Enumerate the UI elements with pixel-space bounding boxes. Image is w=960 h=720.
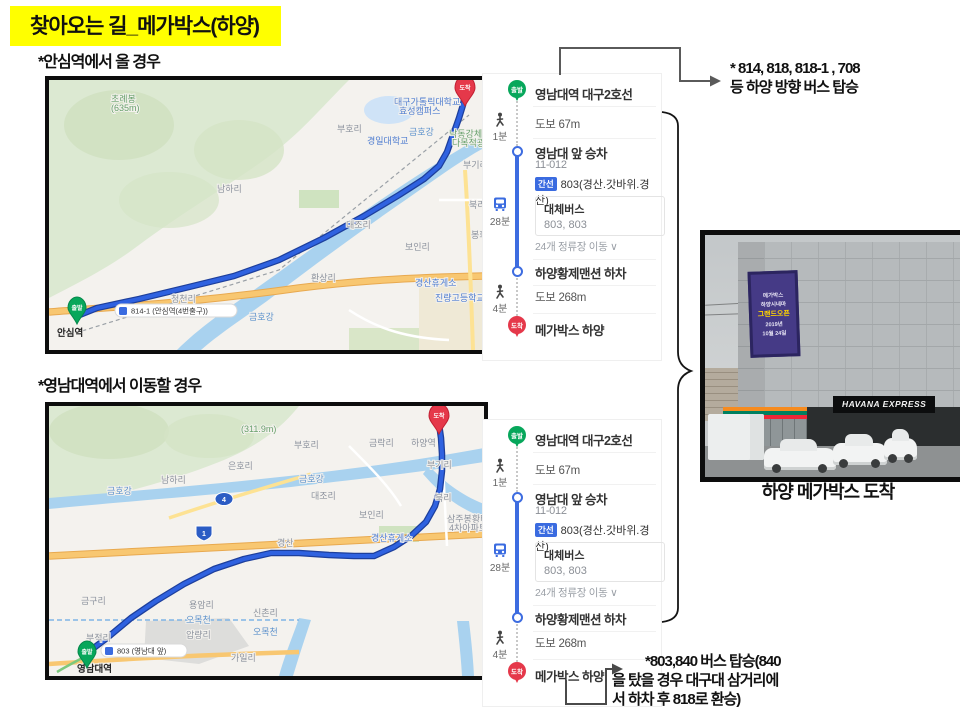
dest-pin: 도착 [508, 662, 526, 680]
map-label: 신촌리 [253, 608, 278, 618]
svg-text:출발: 출발 [71, 304, 83, 312]
map-label: 청천리 [171, 294, 196, 304]
walk-icon [492, 284, 508, 300]
arrowhead-icon [710, 76, 721, 87]
grand-open-banner: 메가박스 하양시네마 그랜드오픈 2019년 10월 24일 [747, 270, 799, 358]
map-label: 진량고등학교 [435, 292, 484, 303]
map-label: (311.9m) [241, 424, 276, 434]
start-pin: 출발 [508, 426, 526, 444]
photo-caption: 하양 메가박스 도착 [700, 478, 956, 504]
map1-start-pin: 출발 [68, 297, 86, 324]
map-label: 부호리 [337, 124, 362, 134]
map-label: 가일리 [231, 653, 256, 663]
map-label: 금호강 [299, 474, 324, 484]
transit-panel-1: 출발 영남대역 대구2호선 1분 도보 67m 영남대 앞 승차 11-012 … [482, 73, 662, 361]
map-label: 오목천 [253, 627, 278, 637]
map-label: 경산휴게소 [371, 532, 412, 543]
map1-start-badge: 814-1 (안심역(4번출구)) [115, 304, 237, 317]
bus-note-top: * 814, 818, 818-1 , 708 등 하양 방향 버스 탑승 [730, 60, 860, 98]
walk-icon [492, 630, 508, 646]
stops-toggle: 24개 정류장 이동 ∨ [535, 239, 617, 254]
white-car [833, 443, 887, 465]
section1-subtitle: *안심역에서 올 경우 [38, 48, 160, 72]
start-station: 영남대역 대구2호선 [535, 430, 632, 449]
alight-stop: 하양황제맨션 하차 [535, 609, 626, 628]
slide: 찾아오는 길_메가박스(하양) *안심역에서 올 경우 [0, 0, 960, 720]
map-label: 4차아파트 [449, 522, 484, 533]
map-label: 북리 [435, 493, 452, 503]
svg-text:도착: 도착 [459, 84, 471, 92]
map-label: 경산 [277, 537, 294, 548]
section2-subtitle: *영남대역에서 이동할 경우 [38, 372, 201, 396]
line-type-badge: 간선 [535, 523, 557, 537]
svg-text:814-1 (안심역(4번출구)): 814-1 (안심역(4번출구)) [131, 306, 208, 316]
brace-to-photo [662, 112, 691, 622]
map-label: 대조리 [311, 491, 336, 501]
walk2-dist: 도보 268m [535, 289, 586, 305]
bus-icon [492, 196, 508, 212]
board-code: 11-012 [535, 505, 567, 517]
alt-bus-label: 대체버스 [544, 201, 656, 217]
svg-text:안심역: 안심역 [57, 327, 83, 339]
alight-stop: 하양황제맨션 하차 [535, 263, 626, 282]
map-label: 보인리 [359, 510, 384, 520]
bus-time: 28분 [485, 213, 515, 228]
map-label: 금구리 [81, 596, 106, 606]
havana-express-sign: HAVANA EXPRESS [833, 396, 935, 413]
dest-name: 메가박스 하양 [535, 666, 604, 685]
dest-pin: 도착 [508, 316, 526, 334]
walk1-dist: 도보 67m [535, 462, 580, 478]
svg-text:1: 1 [202, 531, 206, 538]
megabox-photo: 메가박스 하양시네마 그랜드오픈 2019년 10월 24일 HAVANA EX… [700, 230, 960, 482]
walk-icon [492, 112, 508, 128]
svg-text:도착: 도착 [433, 412, 445, 420]
walk-icon [492, 458, 508, 474]
map-label: 다목적광장 [452, 137, 484, 148]
map-label: 금락리 [369, 437, 394, 448]
alt-bus-values: 803, 803 [544, 219, 656, 231]
walk1-dist: 도보 67m [535, 116, 580, 132]
alt-bus-box: 대체버스 803, 803 [535, 196, 665, 236]
map2-start-badge: 803 (영남대 앞) [101, 644, 187, 657]
map-label: 효성캠퍼스 [399, 105, 440, 116]
bus-icon [492, 542, 508, 558]
walk1-time: 1분 [485, 474, 515, 489]
map-label: 부호리 [294, 440, 319, 450]
map-label: 부기리 [427, 460, 452, 470]
map-label: 금호강 [107, 486, 132, 496]
map-label: 오목천 [186, 615, 211, 625]
map-label: 대조리 [346, 220, 371, 230]
page-title: 찾아오는 길_메가박스(하양) [10, 6, 281, 46]
walk2-dist: 도보 268m [535, 635, 586, 651]
map-label: 영남대역 [77, 663, 112, 675]
bus-note-bottom: *803,840 버스 탑승(840 을 탔을 경우 대구대 삼거리에 서 하차… [612, 653, 781, 709]
white-car [764, 448, 836, 470]
svg-text:803 (영남대 앞): 803 (영남대 앞) [117, 646, 167, 656]
walk2-time: 4분 [485, 646, 515, 661]
white-truck [708, 414, 764, 460]
map-label: 보인리 [405, 242, 430, 252]
map-label: 압량리 [186, 629, 211, 640]
highway-shield-1: 1 [196, 526, 212, 541]
map-label: 환상리 [311, 272, 336, 283]
map-label: 금호강 [409, 127, 434, 137]
start-station: 영남대역 대구2호선 [535, 84, 632, 103]
map-label: (635m) [111, 103, 140, 113]
dest-name: 메가박스 하양 [535, 320, 604, 339]
map-yeungnam: 4 1 803 (영남대 앞) (311.9m)은호리남하리부호리금락리하양역부… [45, 402, 488, 680]
map-ansim: 814-1 (안심역(4번출구)) 초례봉(635m)남하리부호리경일대학교대구… [45, 76, 488, 354]
white-car [884, 438, 917, 460]
map-label: 부기리 [463, 160, 484, 170]
svg-text:4: 4 [222, 497, 226, 504]
map-label: 경산휴게소 [415, 277, 456, 288]
map-label: 하양역 [411, 438, 436, 448]
map-label: 남하리 [217, 184, 242, 194]
ansim-route-map: 814-1 (안심역(4번출구)) 초례봉(635m)남하리부호리경일대학교대구… [49, 80, 484, 350]
alt-bus-label: 대체버스 [544, 547, 656, 563]
line-type-badge: 간선 [535, 177, 557, 191]
alt-bus-values: 803, 803 [544, 565, 656, 577]
yeungnam-route-map: 4 1 803 (영남대 앞) (311.9m)은호리남하리부호리금락리하양역부… [49, 406, 484, 676]
svg-text:출발: 출발 [81, 648, 93, 656]
map-label: 용암리 [189, 599, 214, 610]
map-label: 은호리 [228, 461, 253, 471]
map-label: 경일대학교 [367, 135, 408, 146]
alt-bus-box: 대체버스 803, 803 [535, 542, 665, 582]
walk2-time: 4분 [485, 300, 515, 315]
map-label: 남하리 [161, 475, 186, 485]
bus-time: 28분 [485, 559, 515, 574]
highway-shield-4: 4 [215, 493, 233, 506]
map2-dest-pin: 도착 [429, 406, 449, 434]
stops-toggle: 24개 정류장 이동 ∨ [535, 585, 617, 600]
start-pin: 출발 [508, 80, 526, 98]
map-label: 금호강 [249, 312, 274, 322]
board-code: 11-012 [535, 159, 567, 171]
walk1-time: 1분 [485, 128, 515, 143]
